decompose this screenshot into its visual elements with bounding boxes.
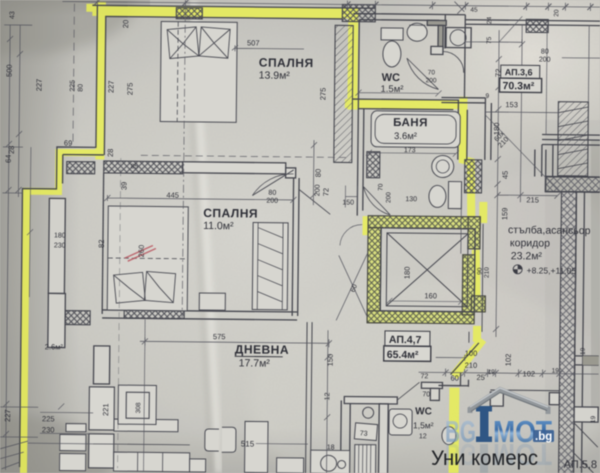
svg-text:17.7м²: 17.7м² <box>239 357 271 369</box>
svg-text:200: 200 <box>426 77 437 84</box>
svg-text:64: 64 <box>4 155 13 163</box>
svg-text:72: 72 <box>494 69 503 77</box>
svg-text:80: 80 <box>268 190 276 197</box>
svg-text:225: 225 <box>42 414 55 423</box>
svg-text:159: 159 <box>500 208 509 221</box>
svg-text:275: 275 <box>125 83 134 96</box>
svg-text:19: 19 <box>580 347 587 355</box>
svg-text:210: 210 <box>465 361 478 370</box>
svg-text:АП.3,6: АП.3,6 <box>505 67 533 77</box>
svg-text:225: 225 <box>69 80 76 92</box>
svg-text:12: 12 <box>324 392 331 400</box>
svg-text:70: 70 <box>377 183 384 191</box>
svg-text:39: 39 <box>119 182 128 190</box>
svg-text:18: 18 <box>327 444 335 451</box>
svg-text:221: 221 <box>101 403 110 416</box>
svg-text:1,5м²: 1,5м² <box>413 420 434 430</box>
svg-text:150: 150 <box>342 199 354 206</box>
svg-text:500: 500 <box>5 64 14 77</box>
svg-text:80: 80 <box>541 49 549 56</box>
svg-text:130: 130 <box>405 196 417 203</box>
svg-text:АП.5,8: АП.5,8 <box>564 459 598 471</box>
svg-text:65.4м²: 65.4м² <box>387 349 419 361</box>
svg-text:3.6м²: 3.6м² <box>394 131 417 142</box>
svg-text:102: 102 <box>504 354 513 367</box>
svg-text:коридор: коридор <box>510 237 550 249</box>
svg-text:70: 70 <box>428 69 436 76</box>
svg-text:19: 19 <box>488 369 496 376</box>
svg-text:173: 173 <box>404 147 416 154</box>
svg-text:180: 180 <box>54 232 66 239</box>
svg-text:WC: WC <box>415 406 432 417</box>
svg-text:25: 25 <box>476 373 484 382</box>
svg-text:70.3м²: 70.3м² <box>503 80 535 92</box>
svg-text:20: 20 <box>121 20 130 28</box>
svg-text:45: 45 <box>501 171 510 179</box>
svg-text:АП.4,7: АП.4,7 <box>389 334 422 346</box>
svg-text:СПАЛНЯ: СПАЛНЯ <box>259 56 314 71</box>
svg-text:60: 60 <box>450 374 458 383</box>
svg-text:215: 215 <box>526 195 539 204</box>
svg-text:507: 507 <box>247 38 260 47</box>
svg-text:275: 275 <box>318 88 327 101</box>
svg-text:ДНЕВНА: ДНЕВНА <box>235 342 289 357</box>
svg-text:BG: BG <box>445 414 476 449</box>
svg-text:19: 19 <box>552 368 560 375</box>
svg-text:73: 73 <box>359 430 367 438</box>
svg-text:180: 180 <box>403 267 412 280</box>
svg-text:23.2м²: 23.2м² <box>511 250 543 262</box>
svg-text:+8.25,+11.05: +8.25,+11.05 <box>527 265 577 276</box>
svg-text:153: 153 <box>505 100 518 109</box>
svg-text:210: 210 <box>484 267 491 278</box>
svg-text:200: 200 <box>539 56 551 63</box>
svg-text:72: 72 <box>420 373 428 380</box>
svg-text:28: 28 <box>106 149 115 157</box>
svg-text:69: 69 <box>64 139 72 148</box>
svg-text:100: 100 <box>465 349 478 358</box>
svg-text:200: 200 <box>266 198 278 205</box>
svg-text:9: 9 <box>485 93 489 100</box>
svg-text:11.0м²: 11.0м² <box>203 220 234 232</box>
svg-text:575: 575 <box>213 332 226 341</box>
svg-text:WC: WC <box>382 72 401 84</box>
svg-text:СПАЛНЯ: СПАЛНЯ <box>203 206 258 221</box>
svg-text:102: 102 <box>523 369 536 378</box>
svg-text:85: 85 <box>131 163 139 170</box>
svg-text:28: 28 <box>7 146 16 154</box>
svg-text:230: 230 <box>42 425 55 434</box>
svg-text:24: 24 <box>486 16 493 24</box>
svg-text:230: 230 <box>54 242 66 249</box>
svg-text:72: 72 <box>321 188 330 196</box>
svg-text:43: 43 <box>9 11 16 19</box>
svg-text:80: 80 <box>314 169 323 177</box>
svg-text:515: 515 <box>241 439 255 448</box>
svg-text:445: 445 <box>166 191 179 200</box>
svg-text:БАНЯ: БАНЯ <box>393 117 428 129</box>
svg-text:2.6м²: 2.6м² <box>45 342 64 351</box>
svg-text:227: 227 <box>35 79 44 92</box>
svg-text:150: 150 <box>326 354 335 367</box>
svg-text:90: 90 <box>477 267 484 275</box>
svg-text:82: 82 <box>97 240 106 248</box>
svg-text:Уни комерс: Уни комерс <box>431 446 538 470</box>
svg-text:75: 75 <box>486 36 493 44</box>
svg-text:20: 20 <box>553 9 560 17</box>
svg-text:227: 227 <box>106 80 115 93</box>
svg-text:45: 45 <box>470 7 478 14</box>
svg-text:200: 200 <box>385 192 392 203</box>
svg-text:227: 227 <box>3 409 12 422</box>
svg-text:70: 70 <box>422 391 430 398</box>
svg-text:308: 308 <box>135 402 142 413</box>
svg-text:13.9м²: 13.9м² <box>259 70 291 82</box>
svg-text:80: 80 <box>77 84 84 92</box>
svg-text:160: 160 <box>424 291 437 300</box>
svg-text:стълба,асансьор: стълба,асансьор <box>508 224 591 237</box>
svg-text:12: 12 <box>419 433 427 440</box>
svg-text:260: 260 <box>137 245 146 258</box>
svg-text:.bg: .bg <box>535 431 552 443</box>
svg-text:1.5м²: 1.5м² <box>380 84 403 95</box>
svg-text:19: 19 <box>590 415 597 423</box>
